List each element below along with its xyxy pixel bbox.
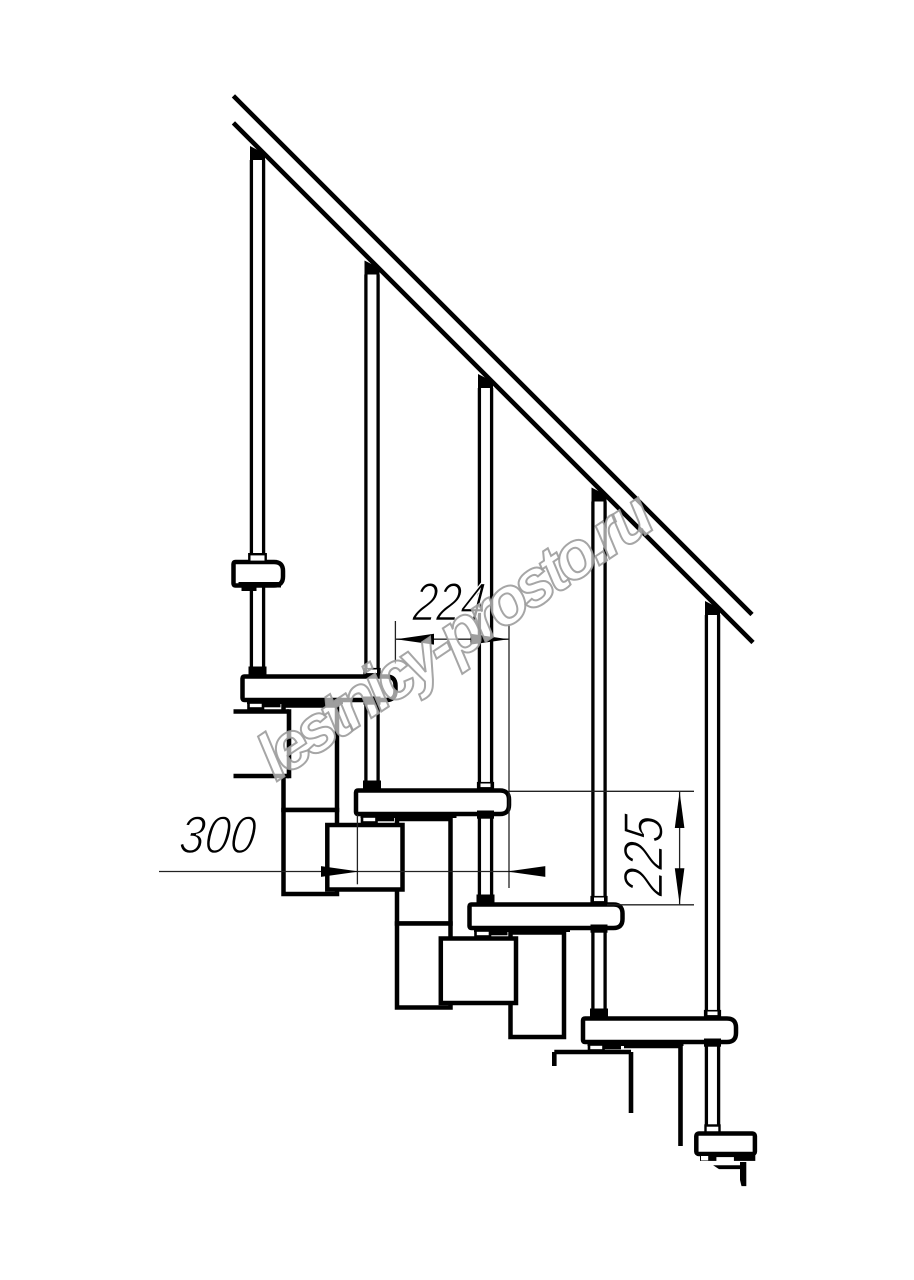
svg-text:300: 300 <box>177 806 260 865</box>
svg-text:225: 225 <box>612 811 675 899</box>
